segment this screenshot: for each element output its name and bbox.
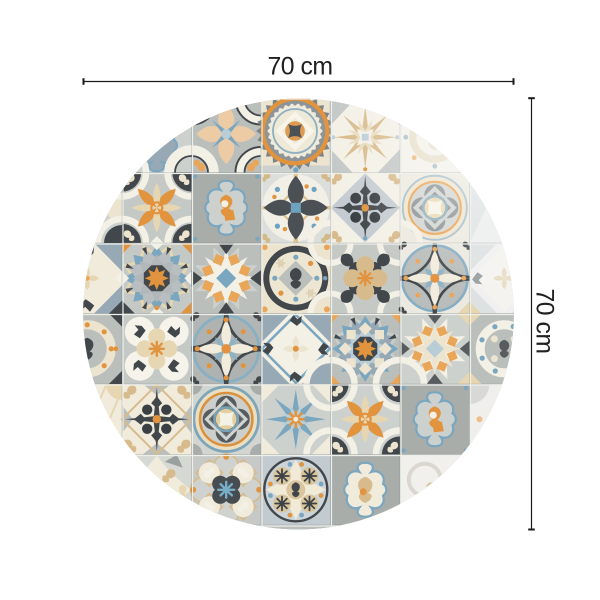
svg-text:70 cm: 70 cm xyxy=(531,288,558,353)
svg-text:70 cm: 70 cm xyxy=(267,54,332,81)
